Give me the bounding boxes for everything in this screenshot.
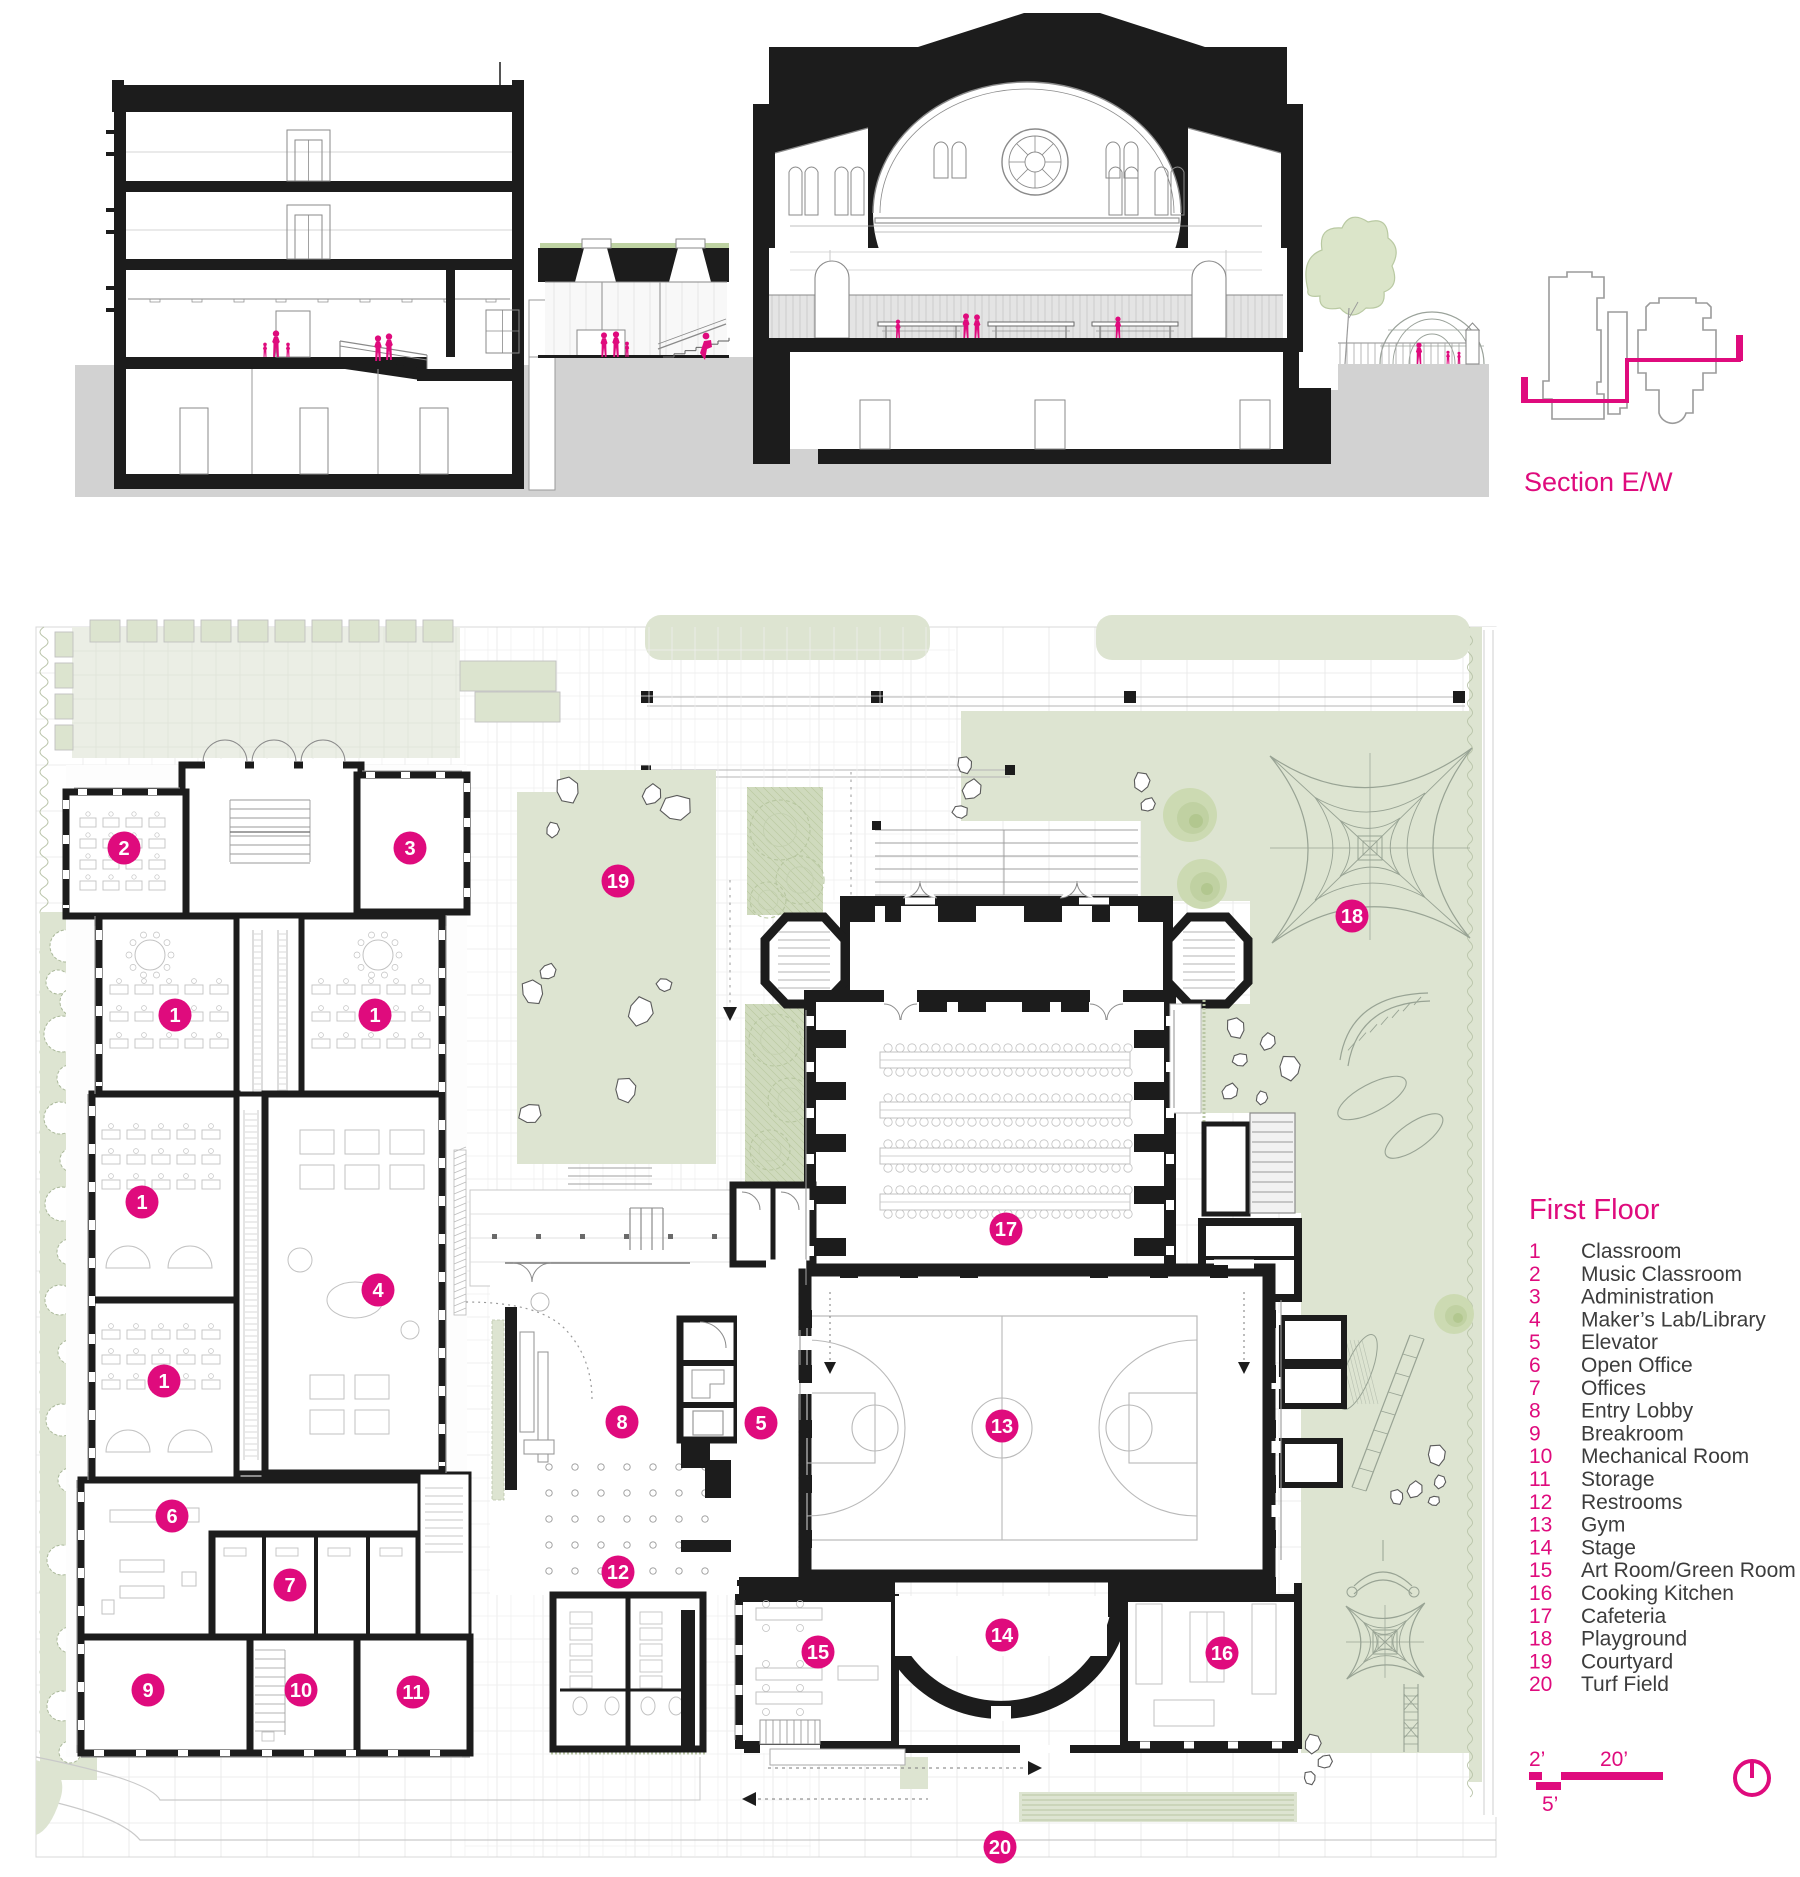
svg-text:1: 1: [1529, 1240, 1541, 1263]
svg-text:Section E/W: Section E/W: [1524, 467, 1673, 497]
svg-text:2: 2: [1529, 1263, 1541, 1286]
svg-text:16: 16: [1529, 1582, 1552, 1605]
svg-text:10: 10: [1529, 1445, 1552, 1468]
svg-text:Storage: Storage: [1581, 1468, 1655, 1491]
svg-text:3: 3: [1529, 1286, 1541, 1309]
svg-text:5: 5: [1529, 1331, 1541, 1354]
svg-text:1: 1: [169, 1005, 180, 1027]
svg-text:17: 17: [1529, 1605, 1552, 1628]
svg-text:11: 11: [1529, 1468, 1551, 1491]
svg-text:20: 20: [1529, 1673, 1552, 1696]
svg-text:2: 2: [118, 838, 129, 860]
svg-text:9: 9: [1529, 1422, 1541, 1445]
svg-text:15: 15: [807, 1642, 829, 1664]
svg-text:Cooking Kitchen: Cooking Kitchen: [1581, 1582, 1734, 1605]
svg-text:13: 13: [1529, 1514, 1552, 1537]
svg-text:Turf Field: Turf Field: [1581, 1673, 1669, 1696]
svg-text:Maker’s Lab/Library: Maker’s Lab/Library: [1581, 1308, 1766, 1331]
svg-text:Elevator: Elevator: [1581, 1331, 1658, 1354]
svg-text:13: 13: [991, 1416, 1013, 1438]
svg-text:Entry Lobby: Entry Lobby: [1581, 1400, 1694, 1423]
svg-text:3: 3: [404, 838, 415, 860]
svg-text:8: 8: [616, 1412, 627, 1434]
svg-text:Mechanical Room: Mechanical Room: [1581, 1445, 1749, 1468]
svg-text:Administration: Administration: [1581, 1286, 1714, 1309]
svg-text:15: 15: [1529, 1559, 1552, 1582]
svg-text:20’: 20’: [1600, 1748, 1628, 1771]
svg-text:1: 1: [158, 1371, 169, 1393]
svg-text:Restrooms: Restrooms: [1581, 1491, 1683, 1514]
svg-text:12: 12: [607, 1562, 629, 1584]
svg-text:17: 17: [995, 1219, 1017, 1241]
svg-text:1: 1: [136, 1192, 147, 1214]
svg-text:4: 4: [372, 1280, 384, 1302]
svg-text:6: 6: [1529, 1354, 1541, 1377]
svg-text:5: 5: [755, 1413, 766, 1435]
svg-text:Cafeteria: Cafeteria: [1581, 1605, 1667, 1628]
svg-text:7: 7: [1529, 1377, 1541, 1400]
svg-text:Classroom: Classroom: [1581, 1240, 1681, 1263]
svg-text:20: 20: [989, 1837, 1011, 1859]
svg-text:19: 19: [1529, 1650, 1552, 1673]
svg-text:4: 4: [1529, 1308, 1541, 1331]
svg-text:12: 12: [1529, 1491, 1552, 1514]
svg-text:10: 10: [290, 1680, 312, 1702]
svg-text:8: 8: [1529, 1400, 1541, 1423]
svg-text:16: 16: [1211, 1643, 1233, 1665]
svg-text:6: 6: [166, 1506, 177, 1528]
svg-text:18: 18: [1341, 906, 1363, 928]
svg-text:1: 1: [369, 1005, 380, 1027]
svg-text:Art Room/Green Room: Art Room/Green Room: [1581, 1559, 1796, 1582]
svg-text:5’: 5’: [1542, 1793, 1558, 1816]
svg-text:14: 14: [1529, 1536, 1553, 1559]
svg-text:19: 19: [607, 871, 629, 893]
svg-text:Playground: Playground: [1581, 1628, 1687, 1651]
svg-text:18: 18: [1529, 1628, 1552, 1651]
svg-text:Breakroom: Breakroom: [1581, 1422, 1684, 1445]
svg-text:2’: 2’: [1529, 1748, 1545, 1771]
svg-text:Music Classroom: Music Classroom: [1581, 1263, 1742, 1286]
svg-text:Courtyard: Courtyard: [1581, 1650, 1673, 1673]
svg-text:Offices: Offices: [1581, 1377, 1646, 1400]
svg-text:Gym: Gym: [1581, 1514, 1625, 1537]
svg-text:9: 9: [142, 1680, 153, 1702]
svg-text:7: 7: [284, 1575, 295, 1597]
svg-text:Stage: Stage: [1581, 1536, 1636, 1559]
svg-text:Open Office: Open Office: [1581, 1354, 1693, 1377]
svg-text:14: 14: [991, 1625, 1014, 1647]
svg-text:11: 11: [402, 1682, 423, 1704]
svg-text:First Floor: First Floor: [1529, 1194, 1660, 1226]
